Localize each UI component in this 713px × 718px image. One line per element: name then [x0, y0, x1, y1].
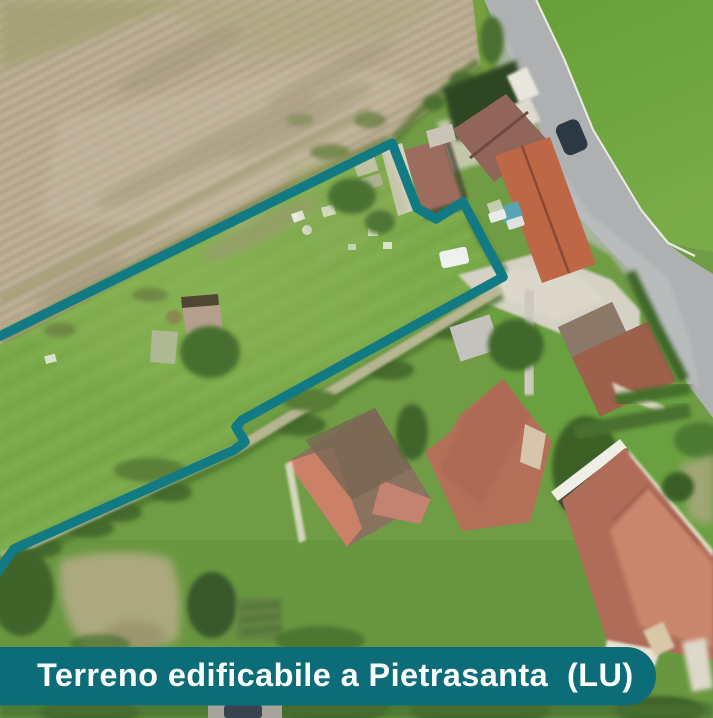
- svg-text:Terreno edificabile a Pietrasa: Terreno edificabile a Pietrasanta (LU): [37, 657, 634, 693]
